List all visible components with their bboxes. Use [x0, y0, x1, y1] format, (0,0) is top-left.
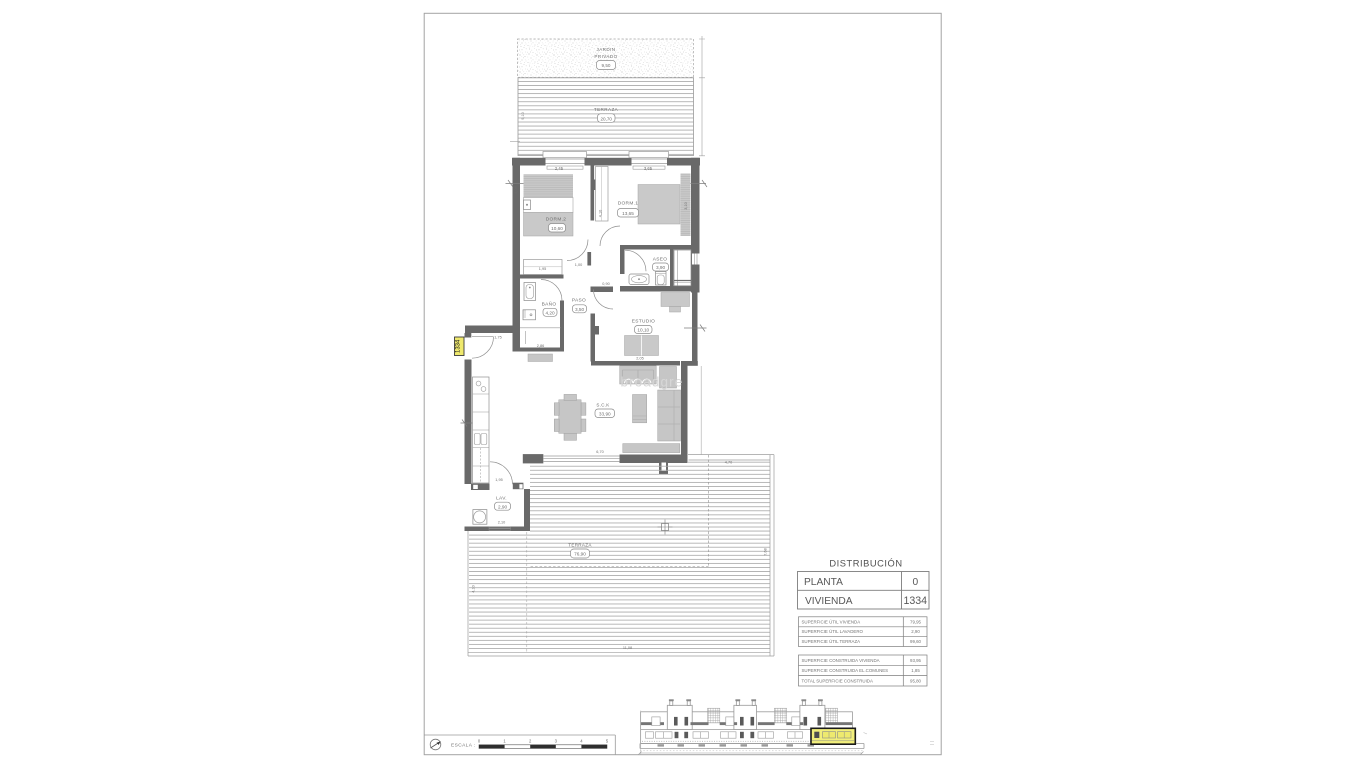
svg-text:1,75: 1,75	[494, 336, 501, 340]
svg-text:93,95: 93,95	[910, 658, 922, 663]
svg-text:4,10: 4,10	[472, 585, 476, 592]
svg-text:DORM.1: DORM.1	[618, 201, 638, 207]
svg-text:0: 0	[912, 577, 918, 588]
svg-text:TOTAL SUPERFICIE CONSTRUIDA: TOTAL SUPERFICIE CONSTRUIDA	[802, 678, 873, 683]
svg-text:9,50: 9,50	[602, 63, 611, 68]
svg-text:2,05: 2,05	[636, 356, 643, 360]
svg-text:0,90: 0,90	[602, 282, 609, 286]
svg-text:2,45: 2,45	[555, 166, 564, 171]
svg-text:3,90: 3,90	[656, 265, 666, 270]
svg-text:11,08: 11,08	[623, 646, 632, 650]
svg-text:10,60: 10,60	[551, 226, 563, 231]
svg-text:3,10: 3,10	[684, 202, 688, 209]
svg-text:ESTUDIO: ESTUDIO	[632, 319, 655, 325]
svg-text:2,10: 2,10	[498, 521, 505, 525]
svg-text:2,90: 2,90	[911, 629, 920, 634]
svg-text:PLANTA: PLANTA	[804, 577, 843, 588]
svg-text:SUPERFICIE ÚTIL LAVADERO: SUPERFICIE ÚTIL LAVADERO	[802, 629, 864, 634]
svg-text:DORM.2: DORM.2	[546, 217, 566, 223]
svg-text:1,85: 1,85	[911, 668, 920, 673]
svg-text:ASEO: ASEO	[653, 257, 668, 263]
svg-text:SUPERFICIE CONSTRUIDA EL.COMUN: SUPERFICIE CONSTRUIDA EL.COMUNES	[802, 668, 889, 673]
svg-text:20,70: 20,70	[600, 116, 612, 121]
svg-text:broadgre: broadgre	[621, 375, 684, 390]
svg-text:1334: 1334	[456, 339, 462, 353]
svg-text:1,95: 1,95	[539, 267, 546, 271]
svg-text:SUPERFICIE ÚTIL TERRAZA: SUPERFICIE ÚTIL TERRAZA	[802, 639, 861, 644]
svg-text:TERRAZA: TERRAZA	[594, 107, 619, 112]
svg-text:S.C.K: S.C.K	[596, 403, 609, 408]
svg-text:99,60: 99,60	[910, 639, 922, 644]
svg-text:PASO: PASO	[572, 298, 586, 304]
svg-text:76,90: 76,90	[574, 552, 586, 557]
svg-text:4,70: 4,70	[725, 461, 732, 465]
svg-text:4,20: 4,20	[545, 310, 555, 315]
svg-text:ESCALA :: ESCALA :	[451, 743, 476, 749]
svg-text:4,10: 4,10	[599, 210, 603, 217]
svg-text:4,08: 4,08	[514, 186, 518, 193]
svg-text:6,70: 6,70	[596, 450, 603, 454]
svg-text:7,68: 7,68	[764, 548, 768, 555]
svg-text:79,95: 79,95	[910, 619, 922, 624]
svg-text:LAV.: LAV.	[496, 496, 507, 502]
svg-text:10,10: 10,10	[637, 328, 649, 333]
svg-text:1334: 1334	[904, 595, 928, 607]
svg-text:TERRAZA: TERRAZA	[568, 543, 592, 548]
svg-text:1,95: 1,95	[495, 478, 502, 482]
svg-text:SUPERFICIE ÚTIL VIVIENDA: SUPERFICIE ÚTIL VIVIENDA	[802, 619, 861, 624]
svg-text:DISTRIBUCIÓN: DISTRIBUCIÓN	[829, 559, 902, 569]
svg-text:PRIVADO: PRIVADO	[594, 54, 617, 59]
svg-text:SUPERFICIE CONSTRUIDA VIVIENDA: SUPERFICIE CONSTRUIDA VIVIENDA	[802, 658, 880, 663]
svg-text:BAÑO: BAÑO	[542, 301, 557, 308]
svg-text:3,50: 3,50	[575, 307, 585, 312]
svg-text:1,00: 1,00	[575, 263, 582, 267]
svg-text:33,90: 33,90	[599, 411, 611, 416]
svg-text:3,65: 3,65	[644, 166, 653, 171]
svg-text:JARDIN: JARDIN	[597, 47, 616, 52]
svg-text:9,10: 9,10	[521, 112, 525, 119]
svg-text:95,80: 95,80	[910, 678, 922, 683]
svg-text:13,65: 13,65	[622, 211, 634, 216]
svg-text:2,90: 2,90	[498, 504, 508, 509]
svg-text:VIVIENDA: VIVIENDA	[805, 596, 853, 607]
svg-text:2,86: 2,86	[537, 344, 544, 348]
